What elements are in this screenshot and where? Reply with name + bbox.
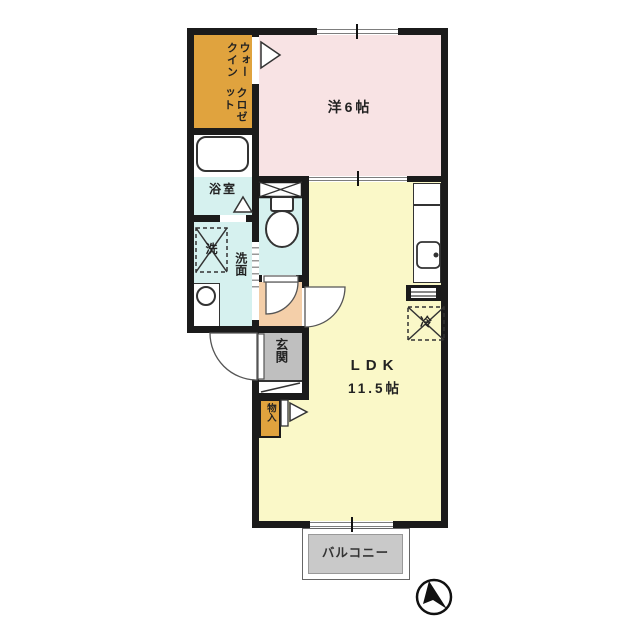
refrigerator-label: 冷 — [408, 316, 444, 330]
walk-in-closet-label-line1: ウォークイン — [198, 42, 250, 87]
toilet-sliding-door — [252, 242, 259, 290]
entrance-step-edge — [259, 380, 302, 382]
ldk-label: LDK — [309, 357, 441, 374]
ldk-door-opening — [302, 288, 309, 326]
walk-in-closet-label-line2: クロゼット — [198, 87, 247, 124]
kitchen-stub-window — [411, 288, 436, 298]
room-toilet — [259, 182, 302, 275]
entrance-label: 玄関 — [273, 338, 287, 378]
ldk-size-label: 11.5帖 — [309, 381, 441, 397]
bathroom-label: 浴室 — [196, 183, 250, 197]
washroom-label: 洗面 — [233, 252, 247, 298]
wall-washroom-bottom — [187, 326, 309, 333]
entrance-step — [259, 382, 302, 393]
north-arrow-icon — [417, 580, 451, 614]
washroom-vanity — [194, 283, 220, 326]
window-top-tick — [356, 24, 358, 39]
room-hallway — [259, 282, 302, 326]
washroom-door-opening — [252, 288, 259, 320]
kitchen-counter — [413, 183, 441, 283]
closet-door-opening — [252, 37, 259, 84]
bathroom-door-opening — [220, 215, 246, 222]
room-bath-tub-area — [194, 135, 252, 177]
kitchen-stub-window-line — [411, 291, 436, 293]
window-balcony-tick — [351, 517, 353, 532]
sliding-door-tick — [357, 171, 359, 186]
wall-right — [441, 28, 448, 528]
western-room-label: 洋6帖 — [259, 99, 441, 115]
kitchen-stub-window-line — [411, 295, 436, 297]
front-door-swing — [210, 333, 257, 380]
balcony-label: バルコニー — [308, 546, 403, 560]
kitchen-counter-divider — [413, 204, 441, 206]
washer-label: 洗 — [196, 243, 227, 257]
walk-in-closet-label: ウォークインクロゼット — [198, 42, 250, 124]
wall-left-upper — [187, 28, 194, 333]
toilet-door-opening — [262, 275, 296, 282]
floorplan: ウォークインクロゼット 洋6帖 浴室 洗 洗面 玄関 物入 冷 LDK 11.5… — [0, 0, 640, 640]
wall-closet-bottom — [187, 128, 259, 135]
storage-label: 物入 — [264, 403, 275, 435]
